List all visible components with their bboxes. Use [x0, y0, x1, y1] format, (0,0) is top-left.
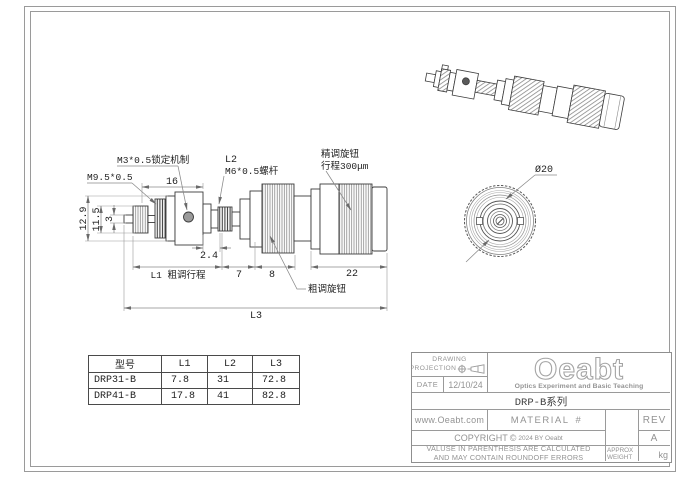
spec-header-l2: L2	[208, 356, 253, 373]
sv-flange	[166, 196, 175, 241]
date-label: DATE	[417, 380, 438, 389]
sv-thread-m6	[218, 207, 232, 231]
isometric-view	[423, 58, 626, 132]
label-l3: L3	[250, 311, 262, 322]
copyright-year: 2024 BY Oeabt	[518, 435, 562, 442]
sv-coarse-knurl	[262, 184, 294, 253]
projection-label-line2: PROJECTION	[412, 365, 456, 373]
iso-thread	[475, 80, 497, 95]
label-screw: M6*0.5螺杆	[225, 165, 279, 177]
website-text: www.Oeabt.com	[415, 415, 484, 425]
material-symbol: #	[576, 415, 583, 426]
material-label: MATERIAL	[511, 415, 570, 426]
sv-lock-screw	[184, 212, 194, 222]
sv-fine-body	[320, 184, 339, 254]
rev-value: A	[651, 433, 659, 444]
label-dim-11-5: 11.5	[92, 207, 103, 231]
weight-unit: kg	[658, 450, 668, 460]
copyright-cell: COPYRIGHT © 2024 BY Oeabt	[412, 431, 606, 446]
spec-row2-l2: 41	[208, 389, 253, 404]
spec-row1-model: DRP31-B	[89, 373, 162, 389]
sv-tab	[148, 216, 155, 223]
disclaimer-line2: AND MAY CONTAIN ROUNDOFF ERRORS	[434, 454, 584, 462]
spec-header-model: 型号	[89, 356, 162, 373]
sv-shaft	[211, 210, 218, 228]
approx-weight-cell: APPROX WEIGHT	[606, 446, 639, 461]
projection-cell: DRAWING PROJECTION	[412, 353, 488, 377]
rev-label: REV	[643, 415, 667, 426]
label-dim-8: 8	[269, 270, 275, 281]
sv-end-cap	[372, 187, 387, 251]
weight-unit-cell: kg	[639, 446, 670, 461]
page: { "colors": { "part_line": "#3c3c3c", "d…	[0, 0, 700, 478]
spec-header-l3: L3	[253, 356, 299, 373]
date-value: 12/10/24	[448, 380, 482, 390]
logo-tagline: Optics Experiment and Basic Teaching	[515, 384, 644, 391]
spec-row1-l2: 31	[208, 373, 253, 389]
series-cell: DRP-B系列	[412, 393, 670, 410]
rev-value-cell: A	[639, 431, 670, 446]
label-dim-2-4: 2.4	[200, 251, 218, 262]
label-diameter-20: Ø20	[535, 164, 553, 176]
sv-collar	[311, 189, 320, 249]
sv-shaft2	[232, 212, 240, 226]
fv-tab-right	[518, 218, 524, 225]
date-value-cell: 12/10/24	[444, 377, 488, 393]
date-label-cell: DATE	[412, 377, 444, 393]
label-thread-left: M9.5*0.5	[87, 172, 133, 183]
label-dim-22: 22	[346, 269, 358, 280]
sv-fine-knurl	[339, 184, 372, 254]
spec-header-l1: L1	[162, 356, 208, 373]
logo-cell: Oeabt Optics Experiment and Basic Teachi…	[488, 353, 670, 393]
sv-step1	[240, 199, 250, 239]
fv-tab-left	[477, 218, 483, 225]
sv-thumb-knurl	[133, 206, 148, 233]
material-cell: MATERIAL #	[488, 410, 606, 431]
spec-row1-l3: 72.8	[253, 373, 299, 389]
title-block: DRAWING PROJECTION DATE 12/10/24 Oeabt O…	[411, 352, 672, 463]
oeabt-logo: Oeabt	[534, 355, 624, 385]
projection-label-line1: DRAWING	[432, 356, 466, 364]
side-view	[124, 184, 387, 254]
label-dim-12-9: 12.9	[79, 206, 90, 230]
rev-label-cell: REV	[639, 410, 670, 431]
material-spec-cell	[606, 410, 639, 446]
label-coarse-knob: 粗调旋钮	[308, 283, 347, 295]
label-fine-knob-2: 行程300μm	[321, 160, 369, 172]
label-l1: L1 粗调行程	[150, 269, 206, 281]
weight-label: WEIGHT	[607, 454, 632, 461]
projection-symbol-icon	[457, 364, 488, 374]
label-dim-16: 16	[166, 177, 178, 188]
sv-thread-m95	[155, 199, 166, 238]
label-fine-knob-1: 精调旋钮	[321, 148, 360, 160]
approx-label: APPROX	[607, 447, 633, 454]
spec-row2-l1: 17.8	[162, 389, 208, 404]
series-name: DRP-B系列	[515, 394, 568, 409]
spec-table: 型号 L1 L2 L3 DRP31-B 7.8 31 72.8 DRP41-B …	[88, 355, 300, 405]
disclaimer-cell: VALUSE IN PARENTHESIS ARE CALCULATED AND…	[412, 446, 606, 461]
sv-step	[203, 204, 211, 233]
spec-row2-model: DRP41-B	[89, 389, 162, 404]
copyright-word: COPYRIGHT	[454, 433, 508, 443]
sv-shaft3	[294, 196, 311, 241]
front-view: Ø20	[465, 164, 558, 262]
label-lock-mechanism: M3*0.5锁定机制	[117, 154, 189, 166]
label-dim-3: 3	[105, 216, 116, 222]
sv-step2	[250, 191, 262, 247]
copyright-symbol: ©	[510, 433, 517, 443]
website-cell: www.Oeabt.com	[412, 410, 488, 431]
label-dim-7: 7	[236, 270, 242, 281]
label-l2: L2	[225, 155, 237, 166]
spec-row2-l3: 82.8	[253, 389, 299, 404]
spec-row1-l1: 7.8	[162, 373, 208, 389]
fv-screw-slot	[497, 218, 504, 225]
